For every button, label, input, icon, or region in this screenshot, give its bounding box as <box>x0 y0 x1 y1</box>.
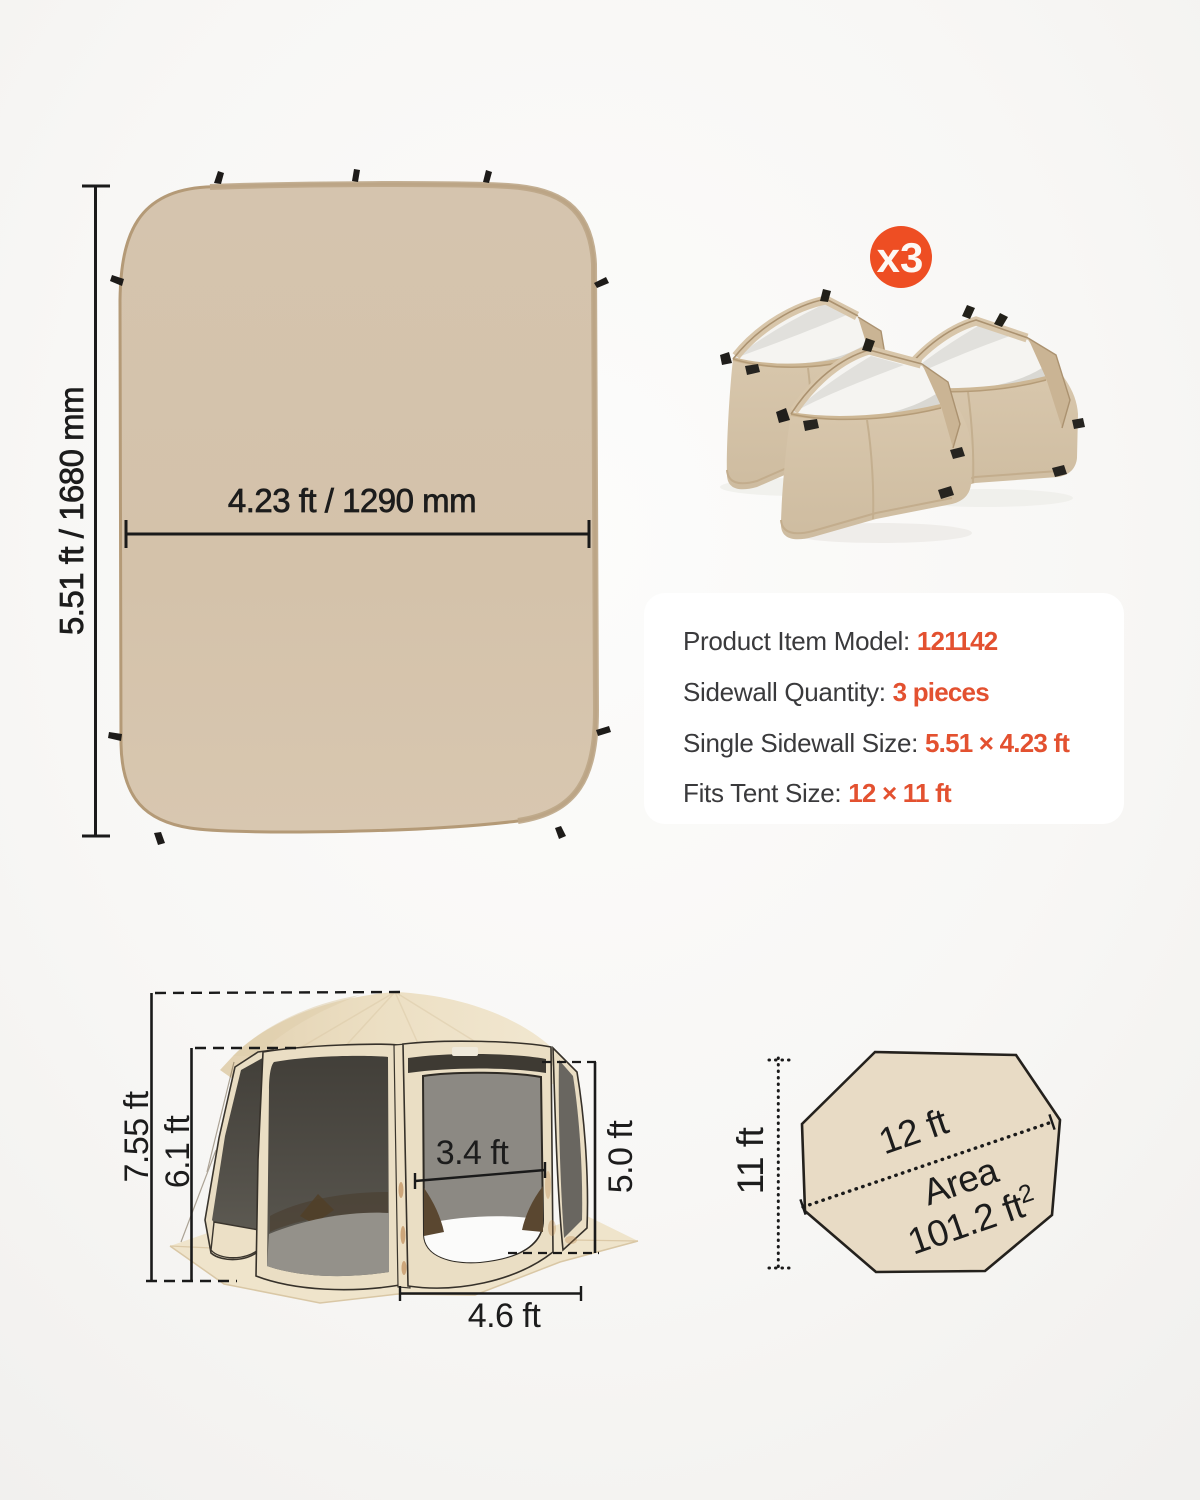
svg-text:Single Sidewall Size: 5.51 × 4: Single Sidewall Size: 5.51 × 4.23 ft <box>683 728 1070 758</box>
svg-text:4.23 ft / 1290 mm: 4.23 ft / 1290 mm <box>228 482 476 519</box>
svg-text:5.0 ft: 5.0 ft <box>602 1120 640 1194</box>
svg-text:5.51 ft / 1680 mm: 5.51 ft / 1680 mm <box>53 387 90 635</box>
svg-text:4.6 ft: 4.6 ft <box>468 1297 542 1335</box>
svg-text:Product Item Model: 121142: Product Item Model: 121142 <box>683 626 998 656</box>
svg-text:7.55 ft: 7.55 ft <box>118 1090 156 1182</box>
svg-text:3.4 ft: 3.4 ft <box>436 1134 510 1172</box>
svg-text:11 ft: 11 ft <box>730 1126 771 1194</box>
svg-text:Fits Tent Size: 12 × 11 ft: Fits Tent Size: 12 × 11 ft <box>683 778 952 808</box>
svg-text:6.1 ft: 6.1 ft <box>159 1115 197 1189</box>
svg-text:x3: x3 <box>877 234 924 281</box>
svg-text:Sidewall Quantity: 3 pieces: Sidewall Quantity: 3 pieces <box>683 677 989 707</box>
